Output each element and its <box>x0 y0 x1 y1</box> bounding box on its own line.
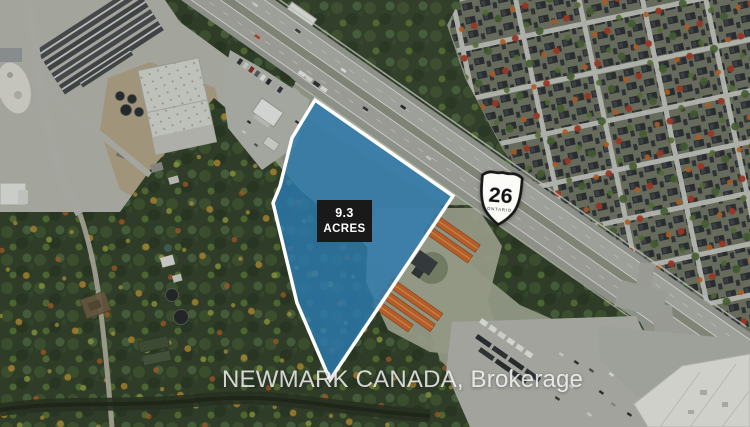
acreage-unit: ACRES <box>323 222 365 236</box>
route-number: 26 <box>488 183 514 209</box>
acreage-value: 9.3 <box>335 206 354 222</box>
aerial-photo: 9.3 ACRES 26 ONTARIO NEWMARK CANADA, Bro… <box>0 0 750 427</box>
brokerage-watermark: NEWMARK CANADA, Brokerage <box>222 366 583 394</box>
acreage-label: 9.3 ACRES <box>317 200 372 242</box>
satellite-map <box>0 0 750 427</box>
ontario-highway-shield-icon: 26 ONTARIO <box>475 166 525 230</box>
